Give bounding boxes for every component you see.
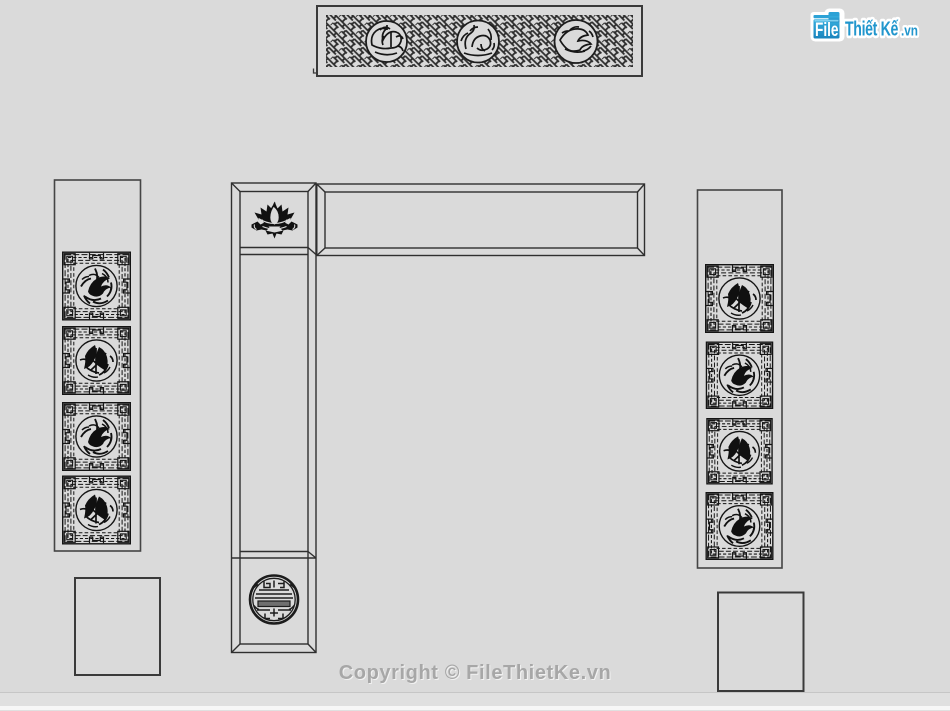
- svg-text:File: File: [815, 20, 839, 41]
- svg-text:Thiết Kế: Thiết Kế: [845, 18, 899, 41]
- svg-text:.vn: .vn: [901, 23, 918, 40]
